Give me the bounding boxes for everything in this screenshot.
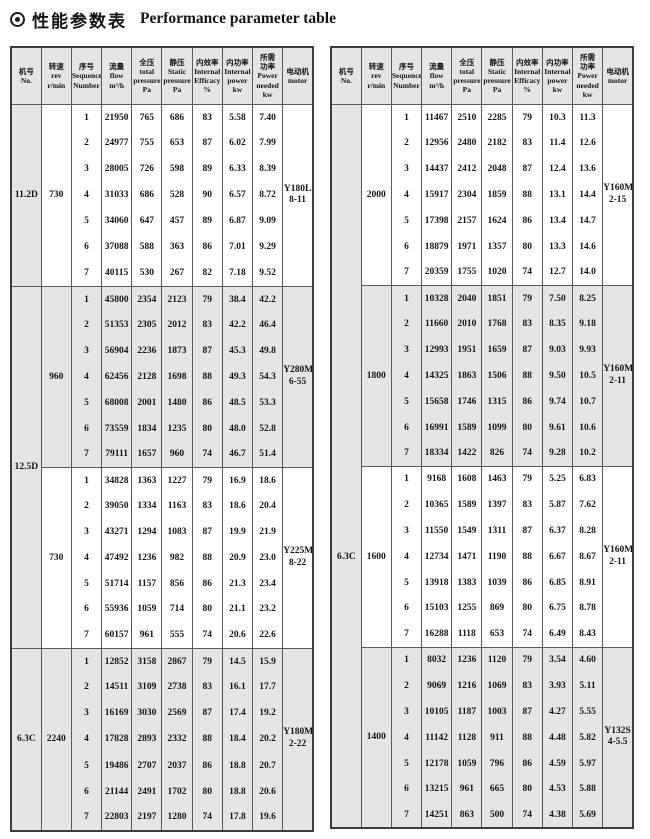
power-needed-cell: 11.3: [573, 105, 603, 131]
power-needed-cell: 9.18: [573, 311, 603, 337]
internal-power-cell: 18.8: [222, 779, 252, 805]
internal-power-cell: 6.57: [222, 182, 252, 208]
seq-cell: 3: [391, 699, 421, 725]
static-pressure-cell: 826: [482, 440, 512, 466]
motor-cell: Y280M 6-55: [283, 286, 313, 467]
internal-efficacy-cell: 83: [512, 492, 542, 518]
flow-cell: 14437: [422, 156, 452, 182]
internal-power-cell: 9.74: [542, 389, 572, 415]
total-pressure-cell: 2197: [132, 805, 162, 831]
col-header-internal-power: 内功率 Internal power kw: [542, 47, 572, 105]
internal-efficacy-cell: 87: [512, 699, 542, 725]
rev-cell: 2000: [361, 105, 391, 286]
flow-cell: 51353: [102, 312, 132, 338]
internal-efficacy-cell: 86: [192, 234, 222, 260]
static-pressure-cell: 1480: [162, 390, 192, 416]
internal-power-cell: 13.1: [542, 182, 572, 208]
total-pressure-cell: 2001: [132, 390, 162, 416]
page-title: 性能参数表 Performance parameter table: [0, 0, 650, 31]
seq-cell: 1: [391, 466, 421, 492]
power-needed-cell: 8.39: [253, 156, 283, 182]
total-pressure-cell: 1255: [452, 596, 482, 622]
power-needed-cell: 8.78: [573, 596, 603, 622]
internal-efficacy-cell: 79: [512, 466, 542, 492]
internal-efficacy-cell: 74: [192, 442, 222, 468]
seq-cell: 4: [391, 544, 421, 570]
rev-cell: 2240: [41, 648, 71, 830]
total-pressure-cell: 1236: [132, 545, 162, 571]
flow-cell: 79111: [102, 442, 132, 468]
internal-efficacy-cell: 88: [192, 726, 222, 752]
total-pressure-cell: 2480: [452, 130, 482, 156]
internal-power-cell: 9.50: [542, 363, 572, 389]
seq-cell: 1: [71, 105, 101, 131]
flow-cell: 21950: [102, 105, 132, 131]
total-pressure-cell: 2510: [452, 105, 482, 131]
internal-power-cell: 38.4: [222, 286, 252, 312]
static-pressure-cell: 1702: [162, 779, 192, 805]
seq-cell: 1: [71, 648, 101, 674]
static-pressure-cell: 1099: [482, 415, 512, 441]
seq-cell: 5: [391, 570, 421, 596]
flow-cell: 24977: [102, 130, 132, 156]
internal-efficacy-cell: 88: [192, 364, 222, 390]
flow-cell: 73559: [102, 416, 132, 442]
flow-cell: 40115: [102, 260, 132, 286]
flow-cell: 21144: [102, 779, 132, 805]
machine-no-cell: 6.3C: [331, 105, 361, 829]
flow-cell: 68008: [102, 390, 132, 416]
internal-efficacy-cell: 87: [512, 156, 542, 182]
total-pressure-cell: 2304: [452, 182, 482, 208]
internal-efficacy-cell: 74: [512, 621, 542, 647]
total-pressure-cell: 1549: [452, 518, 482, 544]
static-pressure-cell: 686: [162, 105, 192, 131]
internal-power-cell: 6.67: [542, 544, 572, 570]
power-needed-cell: 14.7: [573, 208, 603, 234]
power-needed-cell: 14.4: [573, 182, 603, 208]
flow-cell: 17398: [422, 208, 452, 234]
seq-cell: 5: [391, 208, 421, 234]
internal-power-cell: 21.3: [222, 571, 252, 597]
col-header-motor: 电动机 motor: [603, 47, 633, 105]
internal-efficacy-cell: 87: [192, 130, 222, 156]
static-pressure-cell: 653: [482, 621, 512, 647]
internal-power-cell: 6.87: [222, 208, 252, 234]
total-pressure-cell: 2157: [452, 208, 482, 234]
total-pressure-cell: 1589: [452, 415, 482, 441]
internal-efficacy-cell: 74: [512, 260, 542, 286]
total-pressure-cell: 726: [132, 156, 162, 182]
page-title-en: Performance parameter table: [140, 10, 336, 28]
static-pressure-cell: 1859: [482, 182, 512, 208]
power-needed-cell: 42.2: [253, 286, 283, 312]
internal-power-cell: 20.9: [222, 545, 252, 571]
static-pressure-cell: 1315: [482, 389, 512, 415]
internal-efficacy-cell: 87: [192, 519, 222, 545]
seq-cell: 6: [391, 234, 421, 260]
rev-cell: 730: [41, 467, 71, 648]
internal-power-cell: 3.54: [542, 647, 572, 673]
internal-efficacy-cell: 83: [192, 493, 222, 519]
seq-cell: 6: [391, 415, 421, 441]
internal-efficacy-cell: 86: [512, 570, 542, 596]
flow-cell: 12178: [422, 751, 452, 777]
total-pressure-cell: 1422: [452, 440, 482, 466]
seq-cell: 3: [391, 156, 421, 182]
total-pressure-cell: 2491: [132, 779, 162, 805]
total-pressure-cell: 1589: [452, 492, 482, 518]
static-pressure-cell: 2123: [162, 286, 192, 312]
static-pressure-cell: 500: [482, 802, 512, 828]
internal-efficacy-cell: 88: [512, 363, 542, 389]
internal-power-cell: 42.2: [222, 312, 252, 338]
col-header-power-needed: 所需 功率 Power needed kw: [253, 47, 283, 105]
internal-power-cell: 16.9: [222, 467, 252, 493]
seq-cell: 3: [71, 338, 101, 364]
left-table-host: 机号 No.转速 rev r/min序号 Sequence Number流量 f…: [10, 46, 314, 832]
flow-cell: 16991: [422, 415, 452, 441]
internal-power-cell: 3.93: [542, 673, 572, 699]
internal-power-cell: 16.1: [222, 674, 252, 700]
internal-power-cell: 48.5: [222, 390, 252, 416]
static-pressure-cell: 1506: [482, 363, 512, 389]
static-pressure-cell: 665: [482, 776, 512, 802]
internal-power-cell: 14.5: [222, 648, 252, 674]
total-pressure-cell: 2040: [452, 285, 482, 311]
internal-power-cell: 4.48: [542, 725, 572, 751]
total-pressure-cell: 647: [132, 208, 162, 234]
flow-cell: 13215: [422, 776, 452, 802]
bullseye-icon: [10, 12, 25, 27]
internal-power-cell: 5.87: [542, 492, 572, 518]
machine-no-label: 11.2D: [12, 105, 41, 286]
internal-power-cell: 4.38: [542, 802, 572, 828]
power-needed-cell: 23.2: [253, 597, 283, 623]
power-needed-cell: 9.09: [253, 208, 283, 234]
static-pressure-cell: 653: [162, 130, 192, 156]
total-pressure-cell: 2236: [132, 338, 162, 364]
internal-power-cell: 9.61: [542, 415, 572, 441]
col-header-total-pressure: 全压 total pressure Pa: [452, 47, 482, 105]
internal-power-cell: 5.25: [542, 466, 572, 492]
total-pressure-cell: 1951: [452, 337, 482, 363]
total-pressure-cell: 3030: [132, 700, 162, 726]
static-pressure-cell: 982: [162, 545, 192, 571]
motor-cell: Y132S 4-5.5: [603, 647, 633, 828]
power-needed-cell: 23.4: [253, 571, 283, 597]
power-needed-cell: 9.52: [253, 260, 283, 286]
internal-efficacy-cell: 80: [512, 776, 542, 802]
static-pressure-cell: 2738: [162, 674, 192, 700]
total-pressure-cell: 1059: [132, 597, 162, 623]
seq-cell: 6: [71, 597, 101, 623]
power-needed-cell: 8.28: [573, 518, 603, 544]
internal-power-cell: 8.35: [542, 311, 572, 337]
total-pressure-cell: 1755: [452, 260, 482, 286]
flow-cell: 34828: [102, 467, 132, 493]
total-pressure-cell: 1471: [452, 544, 482, 570]
col-header-internal-power: 内功率 Internal power kw: [222, 47, 252, 105]
flow-cell: 51714: [102, 571, 132, 597]
static-pressure-cell: 1280: [162, 805, 192, 831]
internal-efficacy-cell: 79: [512, 647, 542, 673]
seq-cell: 3: [71, 519, 101, 545]
total-pressure-cell: 1187: [452, 699, 482, 725]
total-pressure-cell: 2707: [132, 753, 162, 779]
internal-power-cell: 7.50: [542, 285, 572, 311]
power-needed-cell: 15.9: [253, 648, 283, 674]
rev-cell: 1800: [361, 285, 391, 466]
total-pressure-cell: 961: [452, 776, 482, 802]
internal-power-cell: 10.3: [542, 105, 572, 131]
static-pressure-cell: 869: [482, 596, 512, 622]
flow-cell: 14325: [422, 363, 452, 389]
static-pressure-cell: 528: [162, 182, 192, 208]
seq-cell: 5: [71, 571, 101, 597]
power-needed-cell: 10.6: [573, 415, 603, 441]
total-pressure-cell: 863: [452, 802, 482, 828]
internal-efficacy-cell: 87: [512, 518, 542, 544]
total-pressure-cell: 1294: [132, 519, 162, 545]
seq-cell: 7: [391, 260, 421, 286]
total-pressure-cell: 1236: [452, 647, 482, 673]
total-pressure-cell: 1128: [452, 725, 482, 751]
total-pressure-cell: 1863: [452, 363, 482, 389]
power-needed-cell: 10.2: [573, 440, 603, 466]
seq-cell: 4: [71, 545, 101, 571]
internal-efficacy-cell: 83: [512, 130, 542, 156]
total-pressure-cell: 3109: [132, 674, 162, 700]
flow-cell: 16288: [422, 621, 452, 647]
internal-efficacy-cell: 86: [192, 571, 222, 597]
rev-cell: 960: [41, 286, 71, 467]
flow-cell: 10105: [422, 699, 452, 725]
flow-cell: 43271: [102, 519, 132, 545]
internal-efficacy-cell: 88: [192, 545, 222, 571]
static-pressure-cell: 598: [162, 156, 192, 182]
power-needed-cell: 23.0: [253, 545, 283, 571]
internal-efficacy-cell: 80: [512, 596, 542, 622]
flow-cell: 62456: [102, 364, 132, 390]
internal-efficacy-cell: 74: [192, 805, 222, 831]
flow-cell: 14251: [422, 802, 452, 828]
internal-power-cell: 6.85: [542, 570, 572, 596]
col-header-flow: 流量 flow m³/h: [422, 47, 452, 105]
internal-efficacy-cell: 86: [512, 389, 542, 415]
col-header-rev: 转速 rev r/min: [41, 47, 71, 105]
total-pressure-cell: 755: [132, 130, 162, 156]
internal-power-cell: 19.9: [222, 519, 252, 545]
power-needed-cell: 14.6: [573, 234, 603, 260]
total-pressure-cell: 1746: [452, 389, 482, 415]
total-pressure-cell: 1657: [132, 442, 162, 468]
power-needed-cell: 7.40: [253, 105, 283, 131]
flow-cell: 28005: [102, 156, 132, 182]
page-title-zh: 性能参数表: [32, 7, 127, 32]
internal-efficacy-cell: 83: [192, 312, 222, 338]
internal-power-cell: 6.75: [542, 596, 572, 622]
seq-cell: 7: [391, 802, 421, 828]
static-pressure-cell: 2285: [482, 105, 512, 131]
internal-efficacy-cell: 80: [512, 234, 542, 260]
tables-container: 机号 No.转速 rev r/min序号 Sequence Number流量 f…: [10, 46, 642, 832]
internal-power-cell: 18.8: [222, 753, 252, 779]
static-pressure-cell: 856: [162, 571, 192, 597]
internal-efficacy-cell: 88: [512, 544, 542, 570]
internal-efficacy-cell: 80: [192, 416, 222, 442]
internal-efficacy-cell: 79: [192, 648, 222, 674]
rev-cell: 1600: [361, 466, 391, 647]
static-pressure-cell: 1039: [482, 570, 512, 596]
total-pressure-cell: 588: [132, 234, 162, 260]
static-pressure-cell: 2569: [162, 700, 192, 726]
power-needed-cell: 5.97: [573, 751, 603, 777]
static-pressure-cell: 714: [162, 597, 192, 623]
col-header-sequence: 序号 Sequence Number: [391, 47, 421, 105]
power-needed-cell: 21.9: [253, 519, 283, 545]
internal-efficacy-cell: 74: [192, 622, 222, 648]
static-pressure-cell: 363: [162, 234, 192, 260]
static-pressure-cell: 1003: [482, 699, 512, 725]
col-header-flow: 流量 flow m³/h: [102, 47, 132, 105]
power-needed-cell: 5.69: [573, 802, 603, 828]
power-needed-cell: 22.6: [253, 622, 283, 648]
total-pressure-cell: 1059: [452, 751, 482, 777]
flow-cell: 16169: [102, 700, 132, 726]
seq-cell: 2: [391, 130, 421, 156]
seq-cell: 3: [391, 337, 421, 363]
seq-cell: 2: [71, 493, 101, 519]
motor-cell: Y160M1 2-11: [603, 466, 633, 647]
internal-power-cell: 6.02: [222, 130, 252, 156]
seq-cell: 6: [71, 234, 101, 260]
internal-power-cell: 46.7: [222, 442, 252, 468]
power-needed-cell: 52.8: [253, 416, 283, 442]
col-header-rev: 转速 rev r/min: [361, 47, 391, 105]
flow-cell: 39050: [102, 493, 132, 519]
seq-cell: 5: [391, 751, 421, 777]
power-needed-cell: 8.43: [573, 621, 603, 647]
internal-power-cell: 6.37: [542, 518, 572, 544]
power-needed-cell: 6.83: [573, 466, 603, 492]
static-pressure-cell: 1069: [482, 673, 512, 699]
power-needed-cell: 19.6: [253, 805, 283, 831]
rev-cell: 1400: [361, 647, 391, 828]
total-pressure-cell: 2128: [132, 364, 162, 390]
flow-cell: 9168: [422, 466, 452, 492]
internal-efficacy-cell: 86: [192, 390, 222, 416]
flow-cell: 11142: [422, 725, 452, 751]
internal-power-cell: 11.4: [542, 130, 572, 156]
total-pressure-cell: 530: [132, 260, 162, 286]
internal-efficacy-cell: 80: [192, 597, 222, 623]
seq-cell: 2: [71, 130, 101, 156]
total-pressure-cell: 2893: [132, 726, 162, 752]
seq-cell: 5: [71, 753, 101, 779]
seq-cell: 7: [71, 805, 101, 831]
flow-cell: 13918: [422, 570, 452, 596]
seq-cell: 4: [391, 182, 421, 208]
flow-cell: 12993: [422, 337, 452, 363]
internal-efficacy-cell: 88: [512, 182, 542, 208]
internal-efficacy-cell: 82: [192, 260, 222, 286]
total-pressure-cell: 1383: [452, 570, 482, 596]
internal-efficacy-cell: 83: [512, 673, 542, 699]
power-needed-cell: 14.0: [573, 260, 603, 286]
seq-cell: 4: [71, 182, 101, 208]
internal-power-cell: 13.4: [542, 208, 572, 234]
internal-power-cell: 6.33: [222, 156, 252, 182]
internal-efficacy-cell: 80: [512, 415, 542, 441]
left-table: 机号 No.转速 rev r/min序号 Sequence Number流量 f…: [10, 46, 314, 832]
internal-power-cell: 45.3: [222, 338, 252, 364]
flow-cell: 37088: [102, 234, 132, 260]
total-pressure-cell: 1971: [452, 234, 482, 260]
col-header-total-pressure: 全压 total pressure Pa: [132, 47, 162, 105]
total-pressure-cell: 2305: [132, 312, 162, 338]
static-pressure-cell: 1163: [162, 493, 192, 519]
static-pressure-cell: 457: [162, 208, 192, 234]
col-header-motor: 电动机 motor: [283, 47, 313, 105]
static-pressure-cell: 1235: [162, 416, 192, 442]
flow-cell: 19486: [102, 753, 132, 779]
internal-power-cell: 17.4: [222, 700, 252, 726]
seq-cell: 6: [71, 416, 101, 442]
power-needed-cell: 7.99: [253, 130, 283, 156]
power-needed-cell: 51.4: [253, 442, 283, 468]
internal-efficacy-cell: 83: [192, 674, 222, 700]
static-pressure-cell: 796: [482, 751, 512, 777]
power-needed-cell: 12.6: [573, 130, 603, 156]
power-needed-cell: 5.11: [573, 673, 603, 699]
flow-cell: 47492: [102, 545, 132, 571]
static-pressure-cell: 1659: [482, 337, 512, 363]
power-needed-cell: 9.93: [573, 337, 603, 363]
machine-no-label: 12.5D: [12, 377, 41, 558]
static-pressure-cell: 1698: [162, 364, 192, 390]
seq-cell: 4: [391, 725, 421, 751]
seq-cell: 4: [71, 726, 101, 752]
static-pressure-cell: 1768: [482, 311, 512, 337]
seq-cell: 1: [391, 285, 421, 311]
total-pressure-cell: 765: [132, 105, 162, 131]
internal-power-cell: 20.6: [222, 622, 252, 648]
flow-cell: 10365: [422, 492, 452, 518]
power-needed-cell: 20.6: [253, 779, 283, 805]
motor-cell: Y180L 8-11: [283, 105, 313, 287]
power-needed-cell: 8.25: [573, 285, 603, 311]
flow-cell: 14511: [102, 674, 132, 700]
machine-no-label: 6.3C: [332, 466, 361, 647]
internal-power-cell: 6.49: [542, 621, 572, 647]
seq-cell: 5: [71, 208, 101, 234]
total-pressure-cell: 1157: [132, 571, 162, 597]
flow-cell: 55936: [102, 597, 132, 623]
internal-power-cell: 9.28: [542, 440, 572, 466]
power-needed-cell: 8.72: [253, 182, 283, 208]
seq-cell: 4: [391, 363, 421, 389]
col-header-static-pressure: 静压 Static pressure Pa: [482, 47, 512, 105]
power-needed-cell: 54.3: [253, 364, 283, 390]
static-pressure-cell: 960: [162, 442, 192, 468]
internal-efficacy-cell: 74: [512, 802, 542, 828]
seq-cell: 7: [71, 622, 101, 648]
machine-no-cell: 12.5D: [11, 286, 41, 648]
total-pressure-cell: 3158: [132, 648, 162, 674]
total-pressure-cell: 1118: [452, 621, 482, 647]
internal-efficacy-cell: 79: [512, 105, 542, 131]
